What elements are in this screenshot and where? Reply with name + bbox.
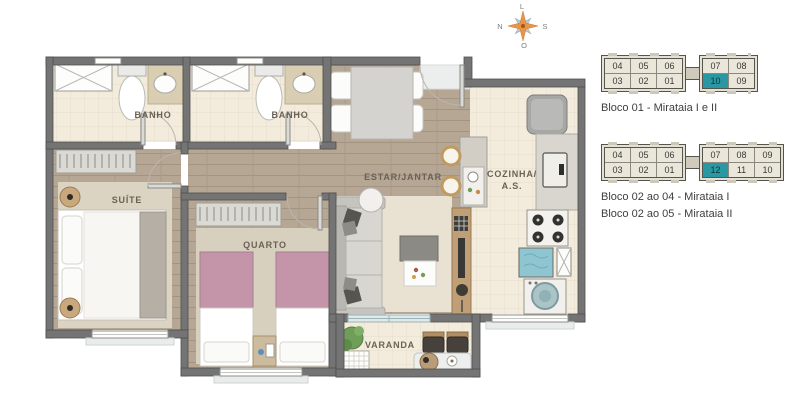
varanda-chair	[423, 337, 444, 353]
building-right-wing: 07 08 10 09	[699, 55, 758, 92]
unit-location-panel: 04 05 06 03 02 01 07 08 10 09 Bloco 01 -…	[601, 55, 791, 222]
burner-cap	[557, 236, 560, 239]
tray-decor	[414, 268, 418, 272]
unit-cell: 03	[605, 163, 630, 177]
laundry-tank	[519, 248, 553, 277]
console-decor	[456, 284, 468, 296]
label-cozinha-line2: A.S.	[502, 181, 523, 191]
unit-cell: 06	[657, 148, 682, 162]
label-quarto: QUARTO	[243, 240, 287, 250]
unit-cell: 02	[631, 74, 656, 88]
tray-decor	[412, 275, 416, 279]
washer-knob	[529, 282, 532, 285]
unit-cell: 04	[605, 59, 630, 73]
unit-cell: 05	[631, 148, 656, 162]
fridge-top	[531, 99, 563, 130]
stool	[442, 177, 460, 195]
map-caption: Bloco 02 ao 04 - Mirataia I	[601, 190, 791, 205]
compass-letter-l: L	[520, 2, 524, 11]
unit-cell: 01	[657, 163, 682, 177]
entry-door-leaf	[460, 65, 464, 107]
single-bed-blanket	[276, 252, 329, 308]
washer-drum-inner	[539, 290, 551, 302]
wall	[323, 57, 331, 149]
nightstand-decor	[67, 305, 73, 311]
unit-cell: 09	[729, 74, 754, 88]
pillow	[280, 342, 325, 362]
label-cozinha-line1: COZINHA/	[487, 169, 537, 179]
unit-cell: 11	[729, 163, 754, 177]
toilet-tank	[118, 64, 146, 76]
label-banho1: BANHO	[135, 110, 172, 120]
unit-cell: 10	[755, 163, 780, 177]
wall	[480, 314, 492, 322]
wall	[578, 87, 585, 322]
building-left-wing: 04 05 06 03 02 01	[601, 144, 686, 181]
single-bed-blanket	[200, 252, 253, 308]
window-sill	[86, 338, 174, 345]
label-estar-jantar: ESTAR/JANTAR	[364, 172, 442, 182]
sink-basin	[293, 75, 315, 93]
unit-cell: 06	[657, 59, 682, 73]
wall	[181, 186, 188, 376]
unit-cell: 08	[729, 59, 754, 73]
wall	[302, 368, 336, 376]
floor-hallway	[188, 149, 331, 200]
building-corridor	[685, 156, 700, 169]
faucet	[302, 72, 305, 75]
unit-map-bloco-02: 04 05 06 03 02 01 07 08 09 12 11 10	[601, 144, 791, 222]
window-sill	[486, 322, 574, 329]
suite-door-leaf	[148, 184, 181, 188]
unit-cell: 07	[703, 59, 728, 73]
coffee-table	[400, 236, 438, 261]
compass-letter-s: S	[542, 22, 547, 31]
wall	[176, 142, 288, 149]
pillow	[62, 216, 82, 264]
island-bowl	[468, 172, 478, 182]
spacer	[601, 116, 791, 144]
compass-letter-n: N	[497, 22, 502, 31]
bed-quilt	[84, 212, 140, 318]
wall	[568, 314, 585, 322]
wall	[320, 142, 336, 149]
unit-cell: 05	[631, 59, 656, 73]
label-banho2: BANHO	[272, 110, 309, 120]
pillow	[204, 342, 249, 362]
plate-decor	[451, 360, 454, 363]
stool	[442, 147, 460, 165]
unit-map-bloco-01: 04 05 06 03 02 01 07 08 10 09 Bloco 01 -…	[601, 55, 791, 116]
bed-runner	[140, 212, 166, 318]
label-suite: SUÍTE	[112, 195, 143, 205]
coffee-table-tray	[404, 261, 436, 286]
wall	[329, 193, 336, 376]
map-caption: Bloco 01 - Mirataia I e II	[601, 101, 791, 116]
tv-icon	[458, 238, 465, 278]
wall	[168, 330, 188, 338]
sink-basin	[154, 75, 176, 93]
window	[95, 58, 121, 64]
sink-faucet	[559, 164, 564, 175]
building-right-wing: 07 08 09 12 11 10	[699, 144, 784, 181]
island-decor	[468, 188, 472, 192]
nightstand-decor	[258, 349, 264, 355]
tray-cup	[423, 357, 429, 363]
burner-cap	[537, 236, 540, 239]
wardrobe	[56, 150, 136, 173]
wall	[464, 79, 585, 87]
window	[237, 58, 263, 64]
washer-knob	[535, 282, 538, 285]
building-diagram: 04 05 06 03 02 01 07 08 09 12 11 10	[601, 144, 791, 181]
wall	[46, 330, 92, 338]
unit-cell-highlighted: 12	[703, 163, 728, 177]
unit-cell: 04	[605, 148, 630, 162]
tray-decor	[421, 273, 425, 277]
compass-rose: L S O N	[497, 2, 547, 50]
sofa-pillow	[343, 277, 357, 291]
window-sill	[214, 376, 308, 383]
sofa-pillow	[342, 221, 357, 236]
unit-cell: 09	[755, 148, 780, 162]
side-table	[359, 188, 383, 212]
unit-cell: 02	[631, 163, 656, 177]
burner-cap	[557, 219, 560, 222]
wall	[336, 314, 344, 377]
quarto-door-leaf	[318, 196, 322, 230]
wall	[181, 368, 220, 376]
wall	[336, 369, 480, 377]
unit-cell: 03	[605, 74, 630, 88]
unit-cell: 08	[729, 148, 754, 162]
compass-center	[521, 24, 525, 28]
label-varanda: VARANDA	[365, 340, 415, 350]
wall	[183, 57, 190, 149]
wall	[181, 142, 188, 154]
unit-cell: 01	[657, 74, 682, 88]
wall	[472, 314, 480, 377]
console-basket	[454, 216, 468, 231]
island-decor	[476, 190, 480, 194]
unit-cell-highlighted: 10	[703, 74, 728, 88]
building-diagram: 04 05 06 03 02 01 07 08 10 09	[601, 55, 791, 92]
unit-cell: 07	[703, 148, 728, 162]
wall	[46, 142, 143, 149]
wall	[46, 57, 53, 338]
compass-letter-o: O	[521, 41, 527, 50]
map-caption: Bloco 02 ao 05 - Mirataia II	[601, 207, 791, 222]
toilet-tank	[255, 64, 283, 76]
faucet	[163, 72, 166, 75]
wall	[181, 193, 286, 200]
plant-leaf	[354, 326, 364, 336]
nightstand-decor	[67, 194, 73, 200]
nightstand-frame	[266, 344, 274, 357]
dining-table	[351, 67, 413, 139]
wardrobe	[196, 203, 281, 226]
varanda-chair	[447, 337, 468, 353]
burner-cap	[537, 219, 540, 222]
building-corridor	[685, 67, 700, 80]
round-tray	[420, 353, 438, 371]
building-left-wing: 04 05 06 03 02 01	[601, 55, 686, 92]
